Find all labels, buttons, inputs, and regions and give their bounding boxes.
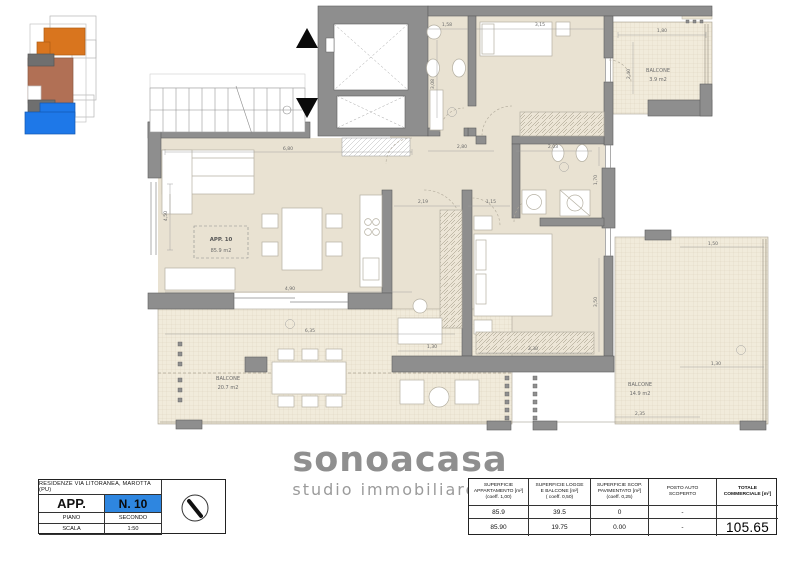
dimension-label: 2,19 (418, 199, 428, 205)
dimension-label: 3,15 (535, 22, 545, 28)
dimension-label: 2,40 (626, 69, 632, 79)
dimension-label: 6,35 (305, 328, 315, 334)
balcony-bl-label: BALCONE (216, 376, 240, 382)
bedroom2-wardrobe (440, 210, 462, 328)
unit-label: APP. (39, 495, 105, 513)
dimension-label: 4,50 (163, 211, 169, 221)
key-plan-orange-block (37, 28, 85, 55)
dimension-label: 3,30 (528, 346, 538, 352)
dimension-label: 1,58 (442, 22, 452, 28)
dimension-label: 3,50 (593, 297, 599, 307)
arrow-up-icon (296, 28, 318, 48)
col-header-appartamento: SUPERFICIEAPPARTAMENTO [m²](coeff. 1,00) (469, 479, 529, 506)
row1-posto-auto: - (649, 506, 717, 519)
tv-unit (165, 268, 235, 290)
balcony-pillar (245, 357, 267, 372)
floor-value: SECONDO (105, 513, 162, 524)
master-bed (474, 216, 552, 334)
staircase (150, 74, 305, 134)
scale-value: 1:50 (105, 524, 162, 535)
unit-number-badge: N. 10 (105, 495, 162, 513)
compass-icon (162, 480, 227, 535)
floor-plan: APP. 10 85.9 m2 BALCONE 3.9 m2 BALCONE 2… (0, 0, 800, 445)
apartment-area: 85.9 m2 (211, 248, 232, 254)
apartment-number: APP. 10 (210, 237, 233, 243)
row2-appartamento: 85.90 (469, 519, 529, 536)
row1-appartamento: 85.9 (469, 506, 529, 519)
bedroom1-wardrobe (520, 112, 604, 136)
area-table: SUPERFICIEAPPARTAMENTO [m²](coeff. 1,00)… (468, 478, 777, 535)
dimension-label: 4,90 (285, 286, 295, 292)
project-title: RESIDENZE VIA LITORANEA, MAROTTA (PU) (39, 480, 162, 495)
row2-scop: 0.00 (591, 519, 649, 536)
dimension-label: 6,80 (283, 146, 293, 152)
balcony-br-area: 14.9 m2 (630, 391, 651, 397)
scale-label: SCALA (39, 524, 105, 535)
dimension-label: 1,30 (711, 361, 721, 367)
info-table: RESIDENZE VIA LITORANEA, MAROTTA (PU) AP… (38, 479, 226, 534)
col-header-logge-balcone: SUPERFICIE LOGGEE BALCONE [m²]( coeff. 0… (529, 479, 591, 506)
total-commercial-value: 105.65 (717, 519, 778, 536)
col-header-posto-auto: POSTO AUTOSCOPERTO (649, 479, 717, 506)
col-header-scop-pavimentato: SUPERFICIE SCOP.PAVIMENTATO [m²](coeff. … (591, 479, 649, 506)
page: APP. 10 85.9 m2 BALCONE 3.9 m2 BALCONE 2… (0, 0, 800, 565)
dimension-label: 3,08 (430, 79, 436, 89)
row1-totale (717, 506, 778, 519)
row1-logge: 39.5 (529, 506, 591, 519)
floor-label: PIANO (39, 513, 105, 524)
outdoor-dining-set (272, 349, 346, 407)
dimension-label: 1,15 (486, 199, 496, 205)
dimension-label: 1,70 (593, 175, 599, 185)
dimension-label: 1,30 (427, 344, 437, 350)
dimension-label: 2,80 (457, 144, 467, 150)
col-header-totale: TOTALECOMMERCIALE [m²] (717, 479, 778, 506)
kitchen-counter (360, 195, 382, 287)
balcony-tr-area: 3.9 m2 (649, 77, 667, 83)
dimension-label: 2,03 (548, 144, 558, 150)
dimension-label: 1,50 (708, 241, 718, 247)
key-plan (25, 16, 96, 134)
dimension-label: 2,35 (635, 411, 645, 417)
row2-logge: 19.75 (529, 519, 591, 536)
balcony-br-label: BALCONE (628, 382, 652, 388)
entrance-mat (342, 138, 410, 156)
dimension-label: 1,80 (657, 28, 667, 34)
logo-name: sonoacasa (292, 443, 507, 478)
balcony-tr-label: BALCONE (646, 68, 670, 74)
elevator-cabins (326, 24, 408, 128)
balcony-bl-area: 20.7 m2 (218, 385, 239, 391)
row1-scop: 0 (591, 506, 649, 519)
row2-posto-auto: - (649, 519, 717, 536)
